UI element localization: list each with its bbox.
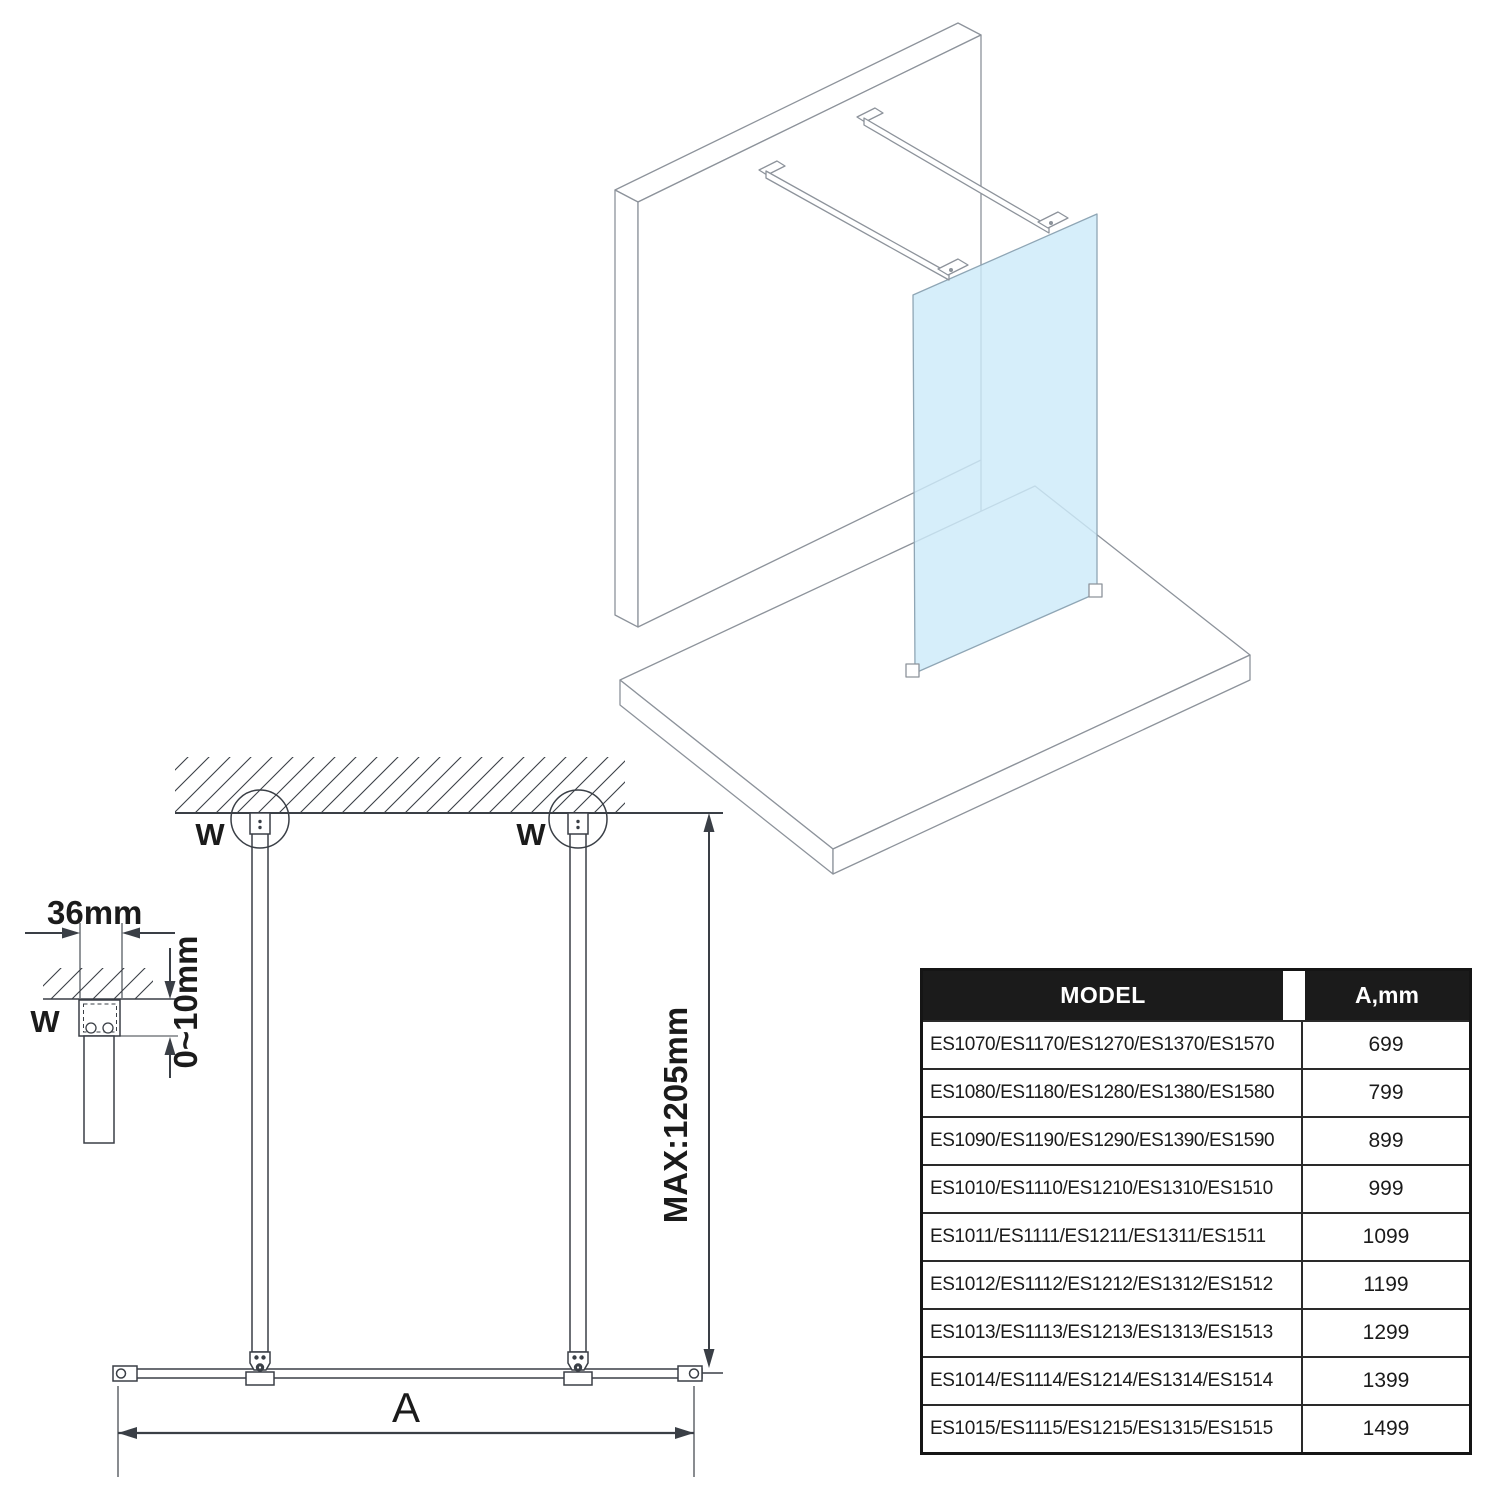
table-row: ES1070/ES1170/ES1270/ES1370/ES1570699 [923, 1020, 1469, 1068]
isometric-view [615, 23, 1250, 874]
width-dimension: A [118, 1384, 694, 1477]
table-row: ES1080/ES1180/ES1280/ES1380/ES1580799 [923, 1068, 1469, 1116]
max-height-dimension: MAX:1205mm [657, 813, 715, 1368]
a-mm-cell: 1499 [1303, 1406, 1469, 1452]
detail-bracket [79, 1000, 120, 1036]
table-row: ES1012/ES1112/ES1212/ES1312/ES15121199 [923, 1260, 1469, 1308]
table-row: ES1015/ES1115/ES1215/ES1315/ES15151499 [923, 1404, 1469, 1452]
model-cell: ES1080/ES1180/ES1280/ES1380/ES1580 [923, 1070, 1303, 1116]
right-pole [570, 813, 586, 1352]
right-ceiling-bracket [568, 813, 588, 834]
model-cell: ES1010/ES1110/ES1210/ES1310/ES1510 [923, 1166, 1303, 1212]
a-mm-cell: 899 [1303, 1118, 1469, 1164]
glass-foot-front [906, 664, 919, 677]
model-cell: ES1070/ES1170/ES1270/ES1370/ES1570 [923, 1022, 1303, 1068]
left-ceiling-bracket [250, 813, 270, 834]
model-cell: ES1011/ES1111/ES1211/ES1311/ES1511 [923, 1214, 1303, 1260]
a-mm-cell: 1399 [1303, 1358, 1469, 1404]
detail-pole [84, 1036, 114, 1143]
bracket-width-label: 36mm [47, 894, 142, 931]
table-row: ES1014/ES1114/ES1214/ES1314/ES15141399 [923, 1356, 1469, 1404]
left-end-cap [113, 1366, 137, 1381]
glass-panel [913, 214, 1097, 673]
model-size-table: MODEL A,mm ES1070/ES1170/ES1270/ES1370/E… [920, 968, 1472, 1455]
model-cell: ES1090/ES1190/ES1290/ES1390/ES1590 [923, 1118, 1303, 1164]
model-cell: ES1012/ES1112/ES1212/ES1312/ES1512 [923, 1262, 1303, 1308]
max-height-label: MAX:1205mm [657, 1007, 694, 1223]
table-row: ES1090/ES1190/ES1290/ES1390/ES1590899 [923, 1116, 1469, 1164]
left-pole [252, 813, 268, 1352]
table-header-row: MODEL A,mm [923, 971, 1469, 1020]
table-row: ES1013/ES1113/ES1213/ES1313/ES15131299 [923, 1308, 1469, 1356]
table-header-model: MODEL [923, 971, 1283, 1020]
ceiling-hatch [175, 757, 625, 813]
left-w-label: W [195, 817, 225, 852]
gap-label: 0~10mm [167, 935, 204, 1068]
detail-w-label: W [30, 1004, 60, 1039]
glass-top-bar [117, 1369, 702, 1378]
glass-foot-back [1089, 584, 1102, 597]
table-row: ES1010/ES1110/ES1210/ES1310/ES1510999 [923, 1164, 1469, 1212]
diagram-page: W W [0, 0, 1500, 1500]
gap-dimension: 0~10mm [165, 935, 205, 1078]
model-table-body: ES1070/ES1170/ES1270/ES1370/ES1570699ES1… [923, 1020, 1469, 1452]
a-mm-cell: 699 [1303, 1022, 1469, 1068]
right-end-cap [678, 1366, 702, 1381]
right-w-label: W [516, 817, 546, 852]
table-header-a-mm: A,mm [1305, 971, 1469, 1020]
model-cell: ES1014/ES1114/ES1214/ES1314/ES1514 [923, 1358, 1303, 1404]
a-mm-cell: 1099 [1303, 1214, 1469, 1260]
detail-ceiling-hatch [43, 968, 153, 999]
table-header-divider [1283, 971, 1305, 1020]
a-mm-cell: 999 [1303, 1166, 1469, 1212]
front-view: W W [113, 757, 723, 1477]
a-mm-cell: 1299 [1303, 1310, 1469, 1356]
table-row: ES1011/ES1111/ES1211/ES1311/ES15111099 [923, 1212, 1469, 1260]
a-mm-cell: 799 [1303, 1070, 1469, 1116]
a-mm-cell: 1199 [1303, 1262, 1469, 1308]
model-cell: ES1013/ES1113/ES1213/ES1313/ES1513 [923, 1310, 1303, 1356]
width-label: A [392, 1384, 420, 1431]
detail-view: 36mm W [25, 894, 204, 1143]
model-cell: ES1015/ES1115/ES1215/ES1315/ES1515 [923, 1406, 1303, 1452]
